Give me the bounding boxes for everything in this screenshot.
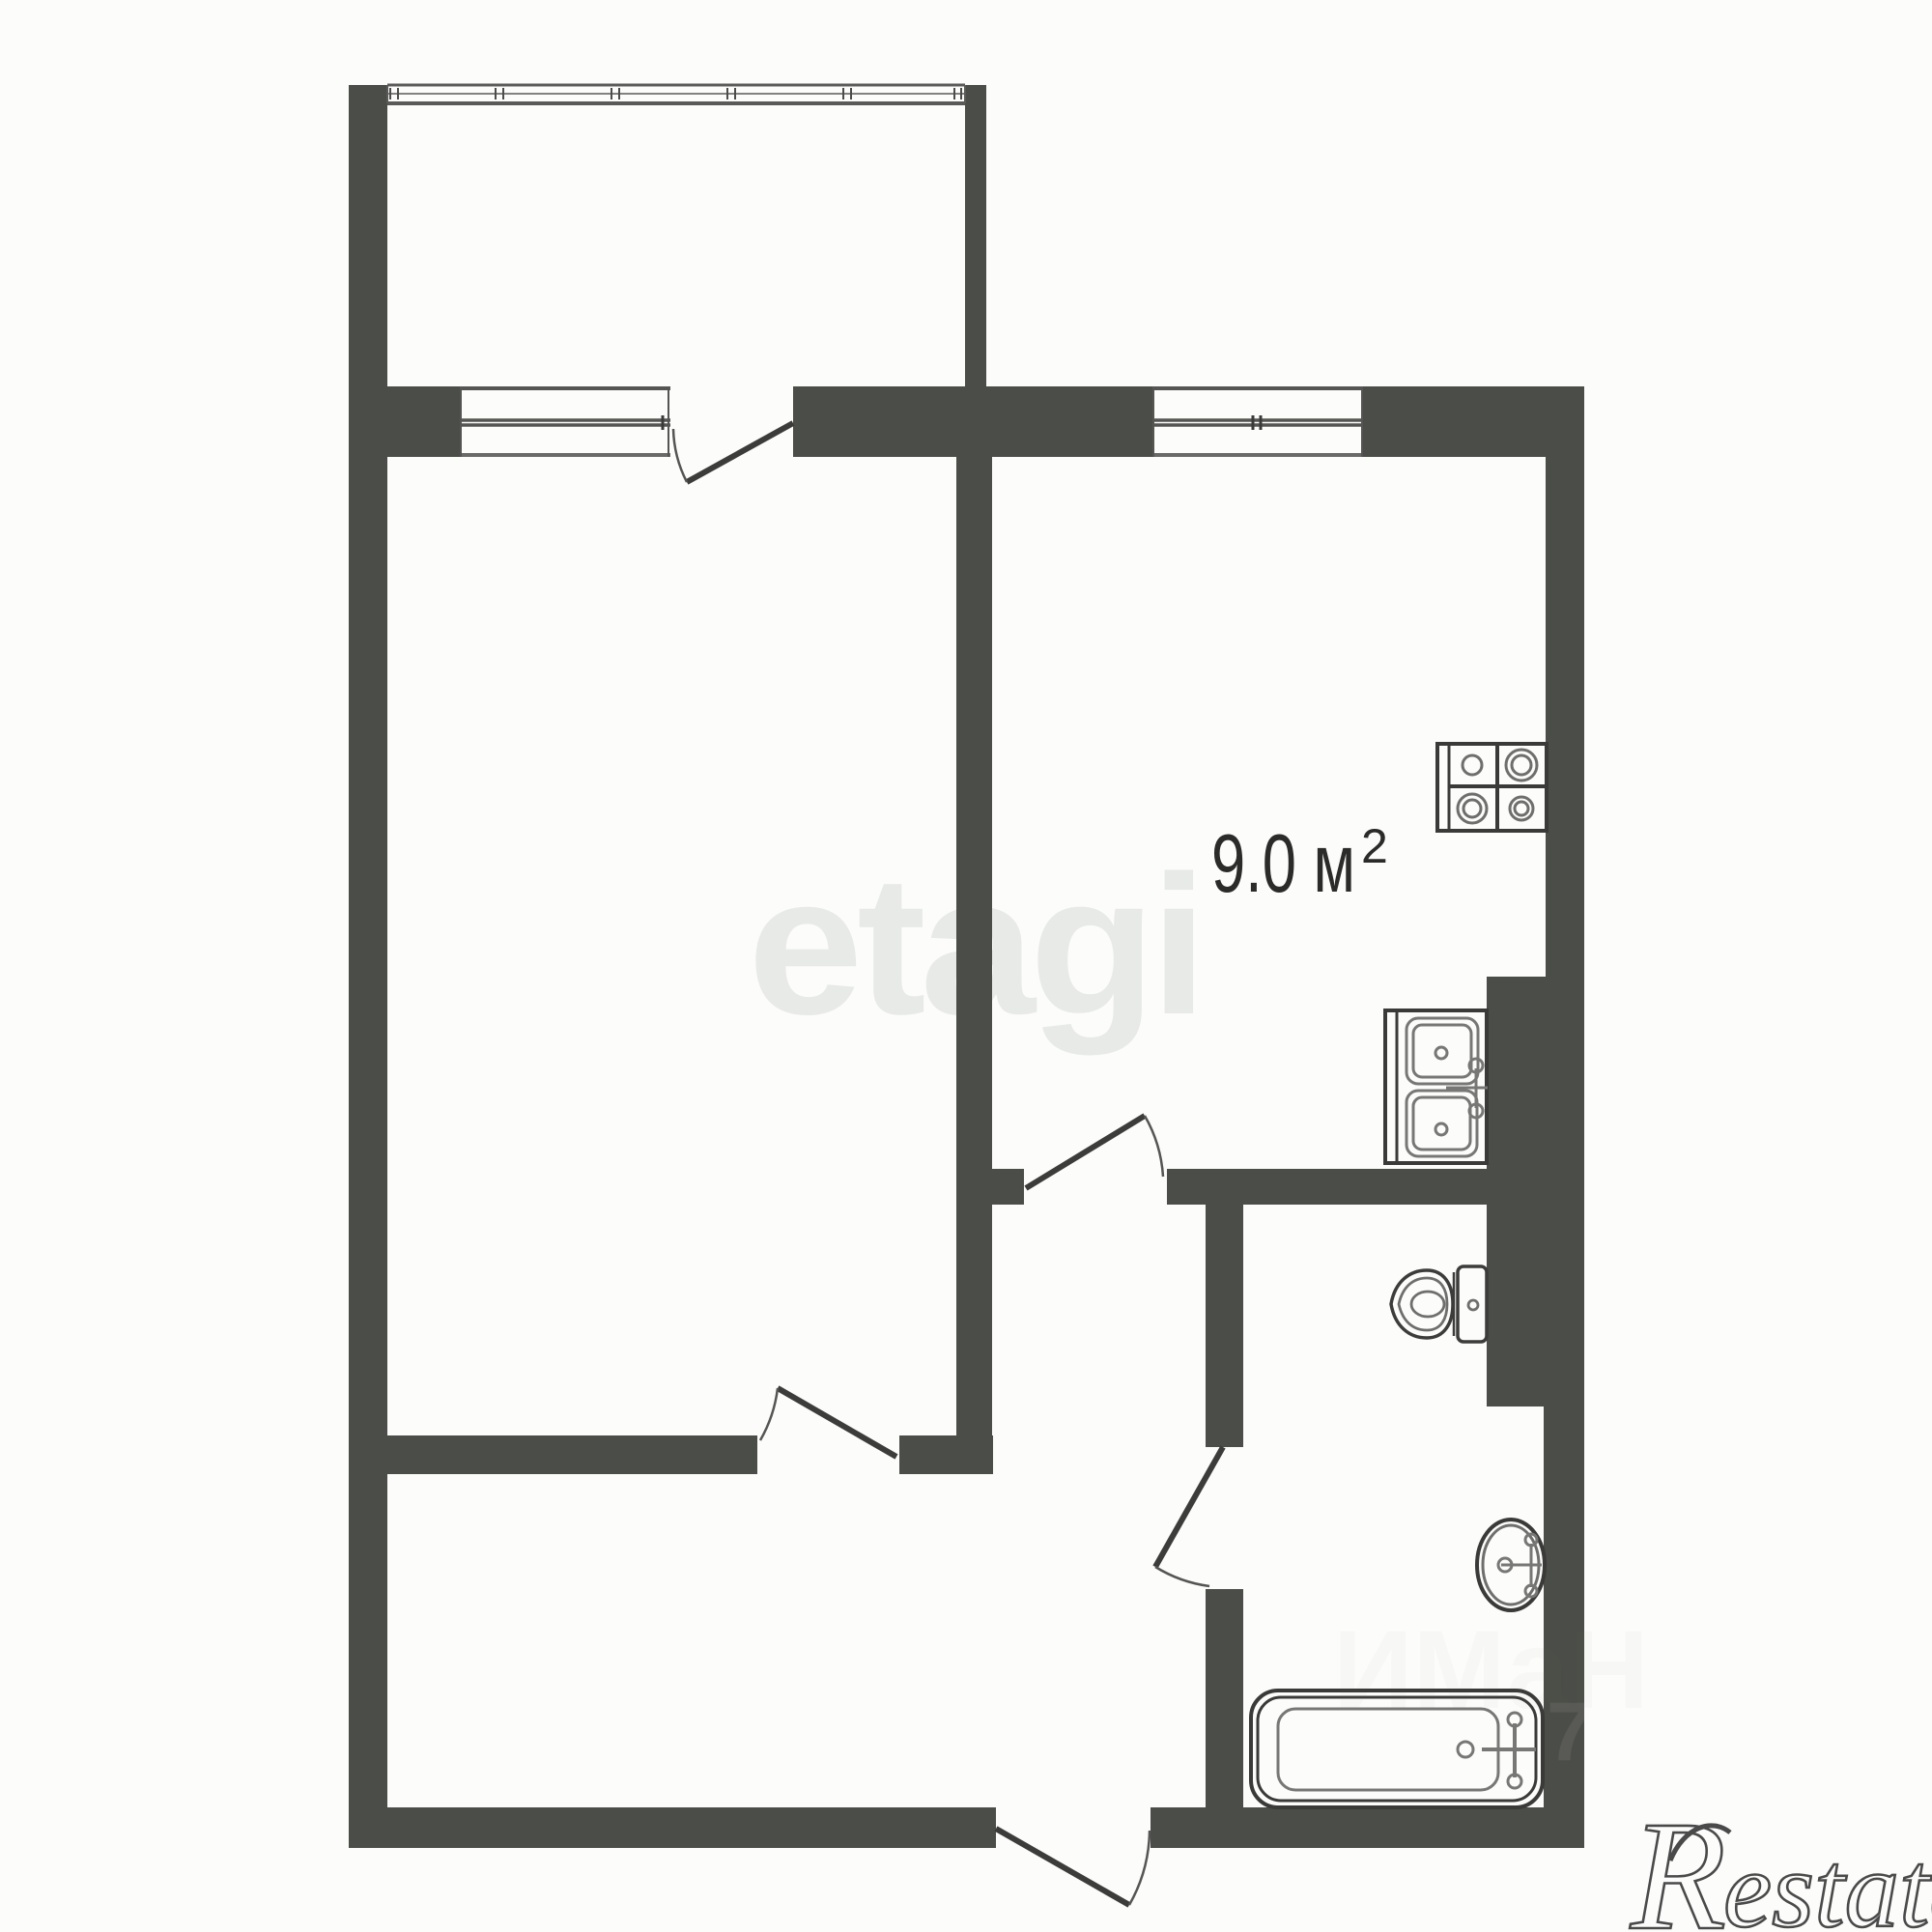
svg-text:74: 74 [1547, 1686, 1639, 1778]
svg-text:2: 2 [1361, 819, 1388, 873]
svg-text:R: R [1630, 1790, 1726, 1932]
svg-text:9.0 м: 9.0 м [1211, 818, 1355, 910]
svg-text:estate: estate [1723, 1830, 1932, 1932]
